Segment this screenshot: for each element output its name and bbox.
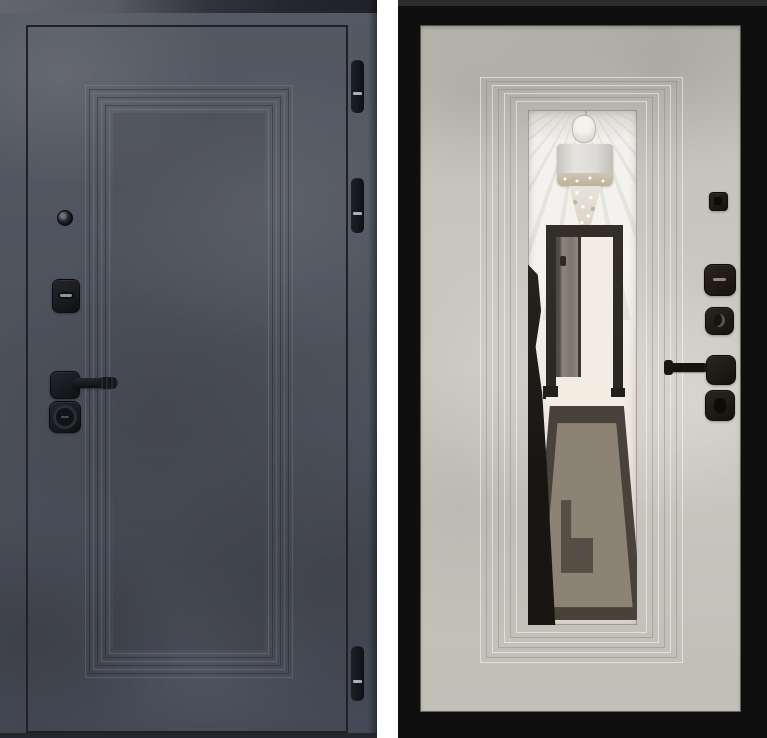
hinge-middle [351, 178, 364, 233]
door-back-side [398, 0, 767, 738]
peephole-cover [709, 192, 728, 211]
recessed-panel-face [113, 113, 265, 650]
door-frame-head-shadow [0, 0, 377, 13]
cylinder-lock-back [704, 264, 736, 296]
lever-handle-back [668, 363, 708, 372]
reflected-doorframe-right [613, 225, 623, 399]
product-photo-entry-door-front-and-back [0, 0, 767, 738]
handle-rosette-back [706, 355, 736, 385]
hinge-top [351, 60, 364, 113]
hinge-bottom [351, 646, 364, 701]
frame-top-bevel [398, 0, 767, 6]
chandelier-drum-shade [557, 144, 613, 186]
cylinder-lock [52, 279, 80, 313]
keyhole-opening [714, 314, 725, 327]
reflected-door-edge [578, 237, 581, 377]
thumbturn-slot [61, 416, 69, 418]
lever-handle-grip [98, 377, 118, 389]
chandelier-crystal-band [557, 173, 613, 186]
keyway-slot [60, 294, 72, 297]
reflected-doorframe-left [546, 225, 556, 397]
background-gap [377, 0, 398, 738]
hinge-knuckle [353, 92, 362, 95]
hinge-knuckle [353, 212, 362, 215]
chandelier-ceiling-mount [572, 115, 596, 143]
thumbturn-escutcheon [705, 390, 735, 421]
deadbolt-rosette [49, 401, 81, 433]
door-front-side [0, 0, 377, 738]
peephole [57, 210, 73, 226]
door-edge-shading [368, 0, 377, 738]
door-threshold [0, 733, 377, 738]
keyway-slot [713, 278, 726, 281]
reflected-door-handle [560, 256, 566, 266]
peephole-cover-dot [714, 197, 722, 205]
keyhole-escutcheon [705, 307, 734, 335]
lever-handle-end [664, 360, 673, 375]
mirror [528, 110, 637, 625]
reflected-doorframe-header [546, 225, 623, 237]
deadbolt-thumbturn [53, 405, 77, 429]
reflected-doorway-interior [556, 237, 613, 397]
thumbturn-knob [714, 398, 726, 413]
hinge-knuckle [353, 680, 362, 683]
